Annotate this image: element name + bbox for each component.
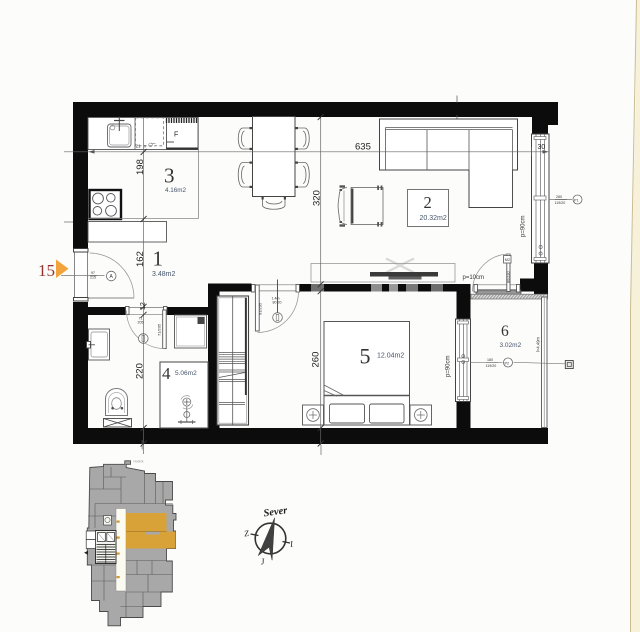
svg-text:119/20: 119/20 [555, 201, 566, 205]
svg-text:P1: P1 [574, 198, 579, 202]
svg-text:P2: P2 [505, 361, 510, 365]
svg-text:l=4.49m: l=4.49m [536, 336, 541, 352]
svg-text:4.16m2: 4.16m2 [165, 187, 187, 194]
svg-text:p=10cm: p=10cm [463, 275, 485, 281]
svg-text:635: 635 [355, 142, 371, 153]
svg-text:p=90cm: p=90cm [521, 215, 527, 237]
svg-text:p=90cm: p=90cm [446, 355, 452, 377]
svg-text:0: 0 [144, 144, 146, 148]
svg-text:Hodnik: Hodnik [134, 460, 144, 464]
svg-text:1: 1 [153, 247, 164, 271]
svg-text:4: 4 [162, 364, 171, 383]
svg-text:280: 280 [556, 195, 562, 199]
svg-text:71/205: 71/205 [157, 323, 162, 336]
svg-text:20.32m2: 20.32m2 [420, 215, 447, 222]
svg-text:80/230: 80/230 [507, 271, 511, 283]
svg-text:80 20: 80 20 [273, 301, 282, 305]
svg-text:97: 97 [91, 271, 95, 275]
svg-text:215: 215 [90, 276, 96, 280]
svg-text:6: 6 [501, 323, 509, 340]
svg-text:5.06m2: 5.06m2 [175, 370, 197, 377]
svg-text:F: F [174, 132, 178, 139]
svg-text:198: 198 [135, 159, 146, 175]
svg-text:2: 2 [424, 193, 432, 212]
svg-text:3.48m2: 3.48m2 [152, 271, 175, 278]
svg-text:119/20: 119/20 [486, 364, 497, 368]
svg-text:M2: M2 [505, 258, 510, 262]
svg-text:3: 3 [164, 164, 175, 188]
svg-text:91/205: 91/205 [258, 302, 263, 315]
svg-text:21: 21 [136, 143, 141, 148]
svg-text:220: 220 [135, 363, 146, 379]
svg-text:162: 162 [135, 251, 146, 267]
svg-text:12.04m2: 12.04m2 [377, 352, 404, 359]
svg-text:15: 15 [38, 261, 55, 280]
svg-text:3.02m2: 3.02m2 [500, 342, 522, 349]
svg-text:320: 320 [312, 190, 323, 206]
svg-text:260: 260 [311, 352, 322, 368]
svg-text:5: 5 [360, 344, 371, 369]
svg-text:205: 205 [138, 321, 144, 325]
svg-text:30: 30 [538, 144, 546, 151]
svg-text:180: 180 [487, 358, 493, 362]
